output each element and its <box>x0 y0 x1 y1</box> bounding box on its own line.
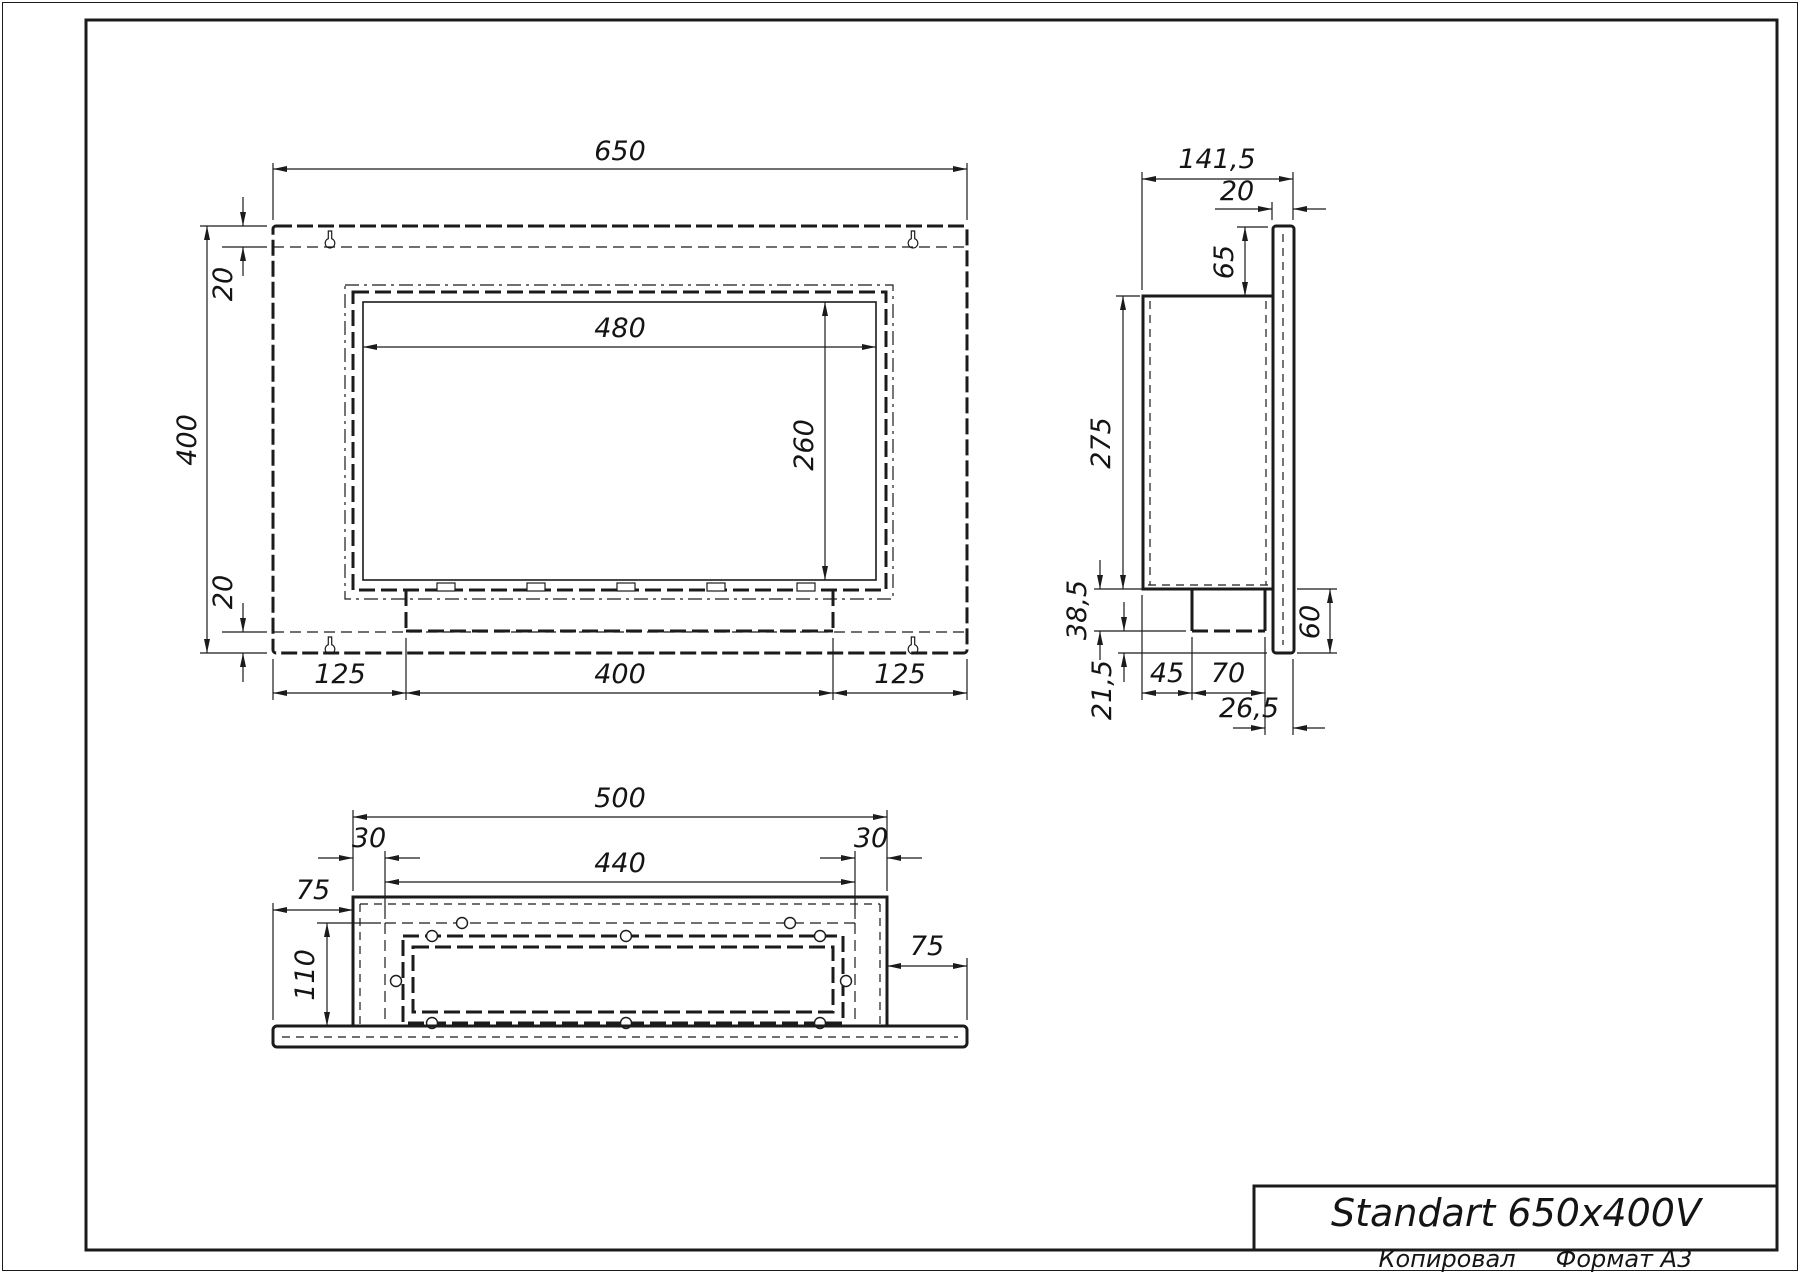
side-view: 141,5 20 65 275 38,5 <box>1062 144 1337 735</box>
dim-text-opening-width-bottom: 440 <box>594 848 646 879</box>
dim-text-overall-height: 400 <box>172 414 203 466</box>
mounting-hole <box>841 976 852 987</box>
keyhole-icon <box>325 231 335 248</box>
dim-text-burner-offset: 45 <box>1150 658 1184 689</box>
mounting-hole <box>457 918 468 929</box>
mounting-hole <box>427 931 438 942</box>
drawing-frame <box>86 20 1777 1250</box>
dim-text-opening-depth: 110 <box>290 949 321 1001</box>
dim-text-box-bottom-drop: 38,5 <box>1062 580 1093 640</box>
drawing-sheet: 650 400 20 20 480 <box>0 0 1800 1273</box>
dimension-480: 480 <box>363 313 876 347</box>
dim-text-box-width: 500 <box>594 783 646 814</box>
side-box-outline <box>1143 296 1273 589</box>
keyhole-icon <box>908 231 918 248</box>
tab-notch <box>707 583 725 591</box>
mounting-hole <box>815 931 826 942</box>
paper-border <box>3 3 1798 1271</box>
dim-text-burner-to-panel: 26,5 <box>1219 693 1279 724</box>
dimension-440: 440 <box>385 848 855 882</box>
dimension-75-right: 75 <box>887 931 967 1020</box>
mounting-hole <box>785 918 796 929</box>
dim-text-right-margin: 30 <box>854 823 888 854</box>
flange-inner-frame <box>413 947 833 1012</box>
bottom-box-outline <box>353 897 887 1026</box>
dimension-20-top: 20 <box>208 197 267 301</box>
dimension-65: 65 <box>1209 227 1268 296</box>
keyhole-icon <box>908 637 918 654</box>
format-label: Формат А3 <box>1556 1245 1693 1273</box>
dim-text-bottom-right: 125 <box>874 659 926 690</box>
tab-notch <box>437 583 455 591</box>
dimension-110: 110 <box>290 923 381 1026</box>
dimension-275: 275 <box>1086 296 1186 589</box>
tab-notch <box>617 583 635 591</box>
copied-label: Копировал <box>1378 1245 1515 1273</box>
keyhole-icon <box>325 637 335 654</box>
dim-text-burner-depth: 70 <box>1211 658 1245 689</box>
dimension-650: 650 <box>273 136 967 220</box>
dimension-20-panel: 20 <box>1215 176 1326 220</box>
dim-text-top-to-box: 65 <box>1209 245 1240 279</box>
dim-text-right-flange: 75 <box>910 931 944 962</box>
dim-text-overall-width: 650 <box>594 136 646 167</box>
bottom-view: 500 30 30 440 75 1 <box>273 783 967 1047</box>
dim-text-panel-thickness: 20 <box>1220 176 1254 207</box>
dim-text-bottom-left: 125 <box>314 659 366 690</box>
dim-text-bottom-center: 400 <box>594 659 646 690</box>
dimension-260: 260 <box>789 302 825 580</box>
front-view: 650 400 20 20 480 <box>172 136 967 700</box>
dimension-20-bottom: 20 <box>208 575 267 682</box>
dim-text-to-panel-bottom: 21,5 <box>1087 660 1118 720</box>
drawing-title: Standart 650x400V <box>1331 1191 1704 1235</box>
dimension-bottom-chain: 125 400 125 <box>273 638 967 700</box>
dim-text-opening-height: 260 <box>789 419 820 471</box>
dim-text-panel-bottom-height: 60 <box>1295 605 1326 639</box>
dimension-60: 60 <box>1295 589 1337 653</box>
dim-text-left-flange: 75 <box>296 875 330 906</box>
dim-text-box-height: 275 <box>1086 417 1117 469</box>
technical-drawing: 650 400 20 20 480 <box>0 0 1800 1273</box>
flange-outer-frame <box>403 936 843 1023</box>
dim-text-opening-width: 480 <box>594 313 646 344</box>
tab-notch <box>797 583 815 591</box>
dim-text-overall-depth: 141,5 <box>1178 144 1255 175</box>
title-block: Standart 650x400V <box>1254 1186 1777 1250</box>
dim-text-top-margin: 20 <box>208 267 239 301</box>
dim-text-bottom-margin: 20 <box>208 575 239 609</box>
dim-text-left-margin: 30 <box>352 823 386 854</box>
mounting-hole <box>391 976 402 987</box>
mounting-hole <box>621 931 632 942</box>
tab-notch <box>527 583 545 591</box>
